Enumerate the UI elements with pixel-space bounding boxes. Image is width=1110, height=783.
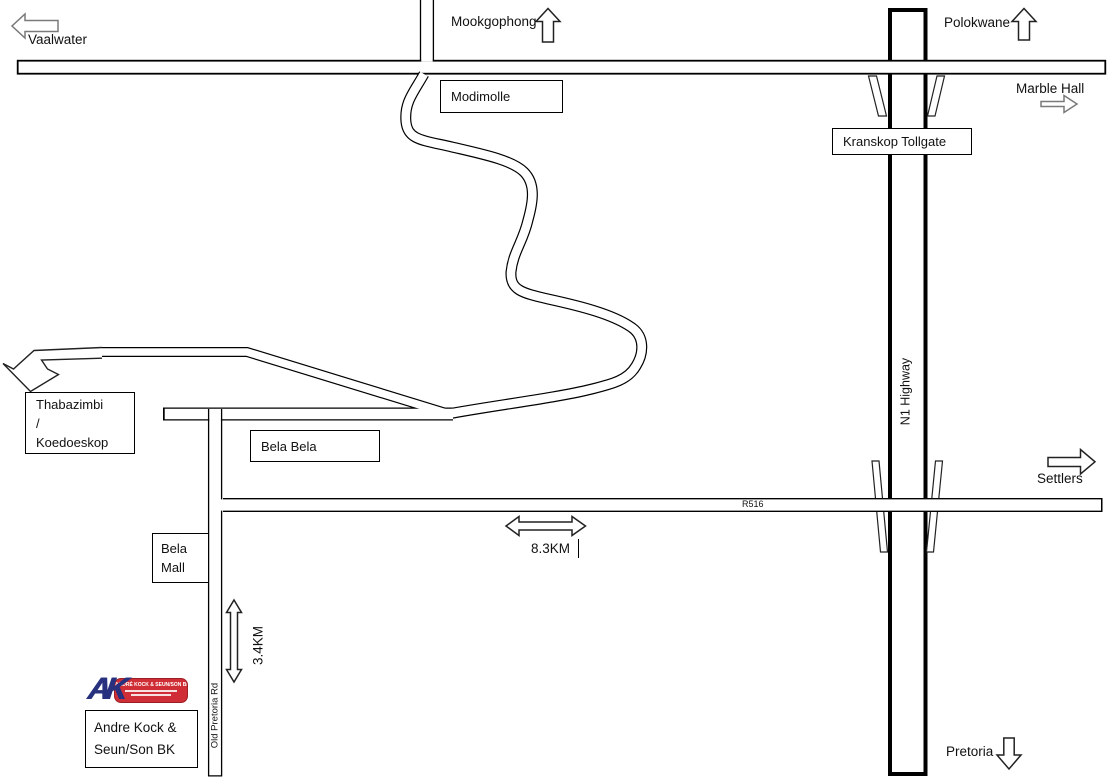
polokwane-label: Polokwane bbox=[944, 14, 1010, 31]
r516-distance-label[interactable]: 8.3KM bbox=[531, 540, 570, 557]
highway-ramp bbox=[869, 76, 887, 116]
top-road bbox=[18, 61, 1106, 74]
bela-mall-label-line2: Mall bbox=[161, 558, 208, 577]
roads-layer bbox=[0, 0, 1110, 783]
distance-arrow-horizontal-icon bbox=[506, 517, 586, 536]
andre-kock-logo: ANDRÉ KOCK & SEUN/SON BK AK bbox=[88, 672, 192, 714]
text-cursor bbox=[578, 539, 579, 558]
vaalwater-label: Vaalwater bbox=[28, 31, 87, 48]
thabazimbi-arrow-icon bbox=[3, 348, 102, 392]
marble-hall-arrow-icon bbox=[1041, 96, 1077, 113]
andre-kock-box: Andre Kock & Seun/Son BK bbox=[85, 710, 198, 768]
modimolle-box: Modimolle bbox=[440, 80, 563, 113]
logo-banner-subtext-line bbox=[131, 694, 171, 696]
mookgophong-arrow-icon bbox=[536, 9, 560, 43]
old-pretoria-rd-label: Old Pretoria Rd bbox=[210, 671, 221, 761]
mookgophong-branch-road bbox=[421, 0, 434, 62]
thabazimbi-koedoeskop-box: Thabazimbi / Koedoeskop bbox=[25, 392, 135, 454]
polokwane-arrow-icon bbox=[1012, 9, 1036, 41]
thabazimbi-label: Thabazimbi bbox=[36, 395, 134, 414]
andre-kock-label-line1: Andre Kock & bbox=[94, 717, 197, 739]
andre-kock-label-line2: Seun/Son BK bbox=[94, 739, 197, 761]
koedoeskop-label: Koedoeskop bbox=[36, 433, 134, 452]
pretoria-arrow-icon bbox=[997, 738, 1021, 769]
highway-ramp bbox=[928, 76, 945, 116]
kranskop-tollgate-label: Kranskop Tollgate bbox=[843, 132, 971, 151]
bela-mall-box: Bela Mall bbox=[152, 533, 209, 583]
logo-banner-text: ANDRÉ KOCK & SEUN/SON BK bbox=[115, 683, 187, 688]
mookgophong-label: Mookgophong bbox=[451, 13, 537, 30]
modimolle-label: Modimolle bbox=[451, 87, 562, 106]
bela-bela-box: Bela Bela bbox=[250, 430, 380, 462]
old-pretoria-distance-label: 3.4KM bbox=[250, 601, 267, 691]
bela-mall-label-line1: Bela bbox=[161, 539, 208, 558]
route-map-canvas: Vaalwater Mookgophong Polokwane Marble H… bbox=[0, 0, 1110, 783]
bela-bela-label: Bela Bela bbox=[261, 437, 379, 456]
winding-road-fill bbox=[406, 74, 642, 414]
r516-label: R516 bbox=[742, 499, 764, 509]
settlers-label: Settlers bbox=[1037, 470, 1083, 487]
distance-arrow-vertical-icon bbox=[227, 600, 242, 682]
marble-hall-label: Marble Hall bbox=[1016, 80, 1084, 97]
kranskop-tollgate-box: Kranskop Tollgate bbox=[832, 128, 972, 155]
n1-highway-label: N1 Highway bbox=[898, 347, 915, 437]
thabazimbi-road-fill bbox=[101, 352, 446, 413]
logo-monogram: AK bbox=[86, 672, 126, 706]
pretoria-label: Pretoria bbox=[946, 743, 993, 760]
logo-banner-subtext-line bbox=[125, 690, 177, 692]
separator-label: / bbox=[36, 414, 134, 433]
logo-banner: ANDRÉ KOCK & SEUN/SON BK bbox=[114, 678, 188, 703]
